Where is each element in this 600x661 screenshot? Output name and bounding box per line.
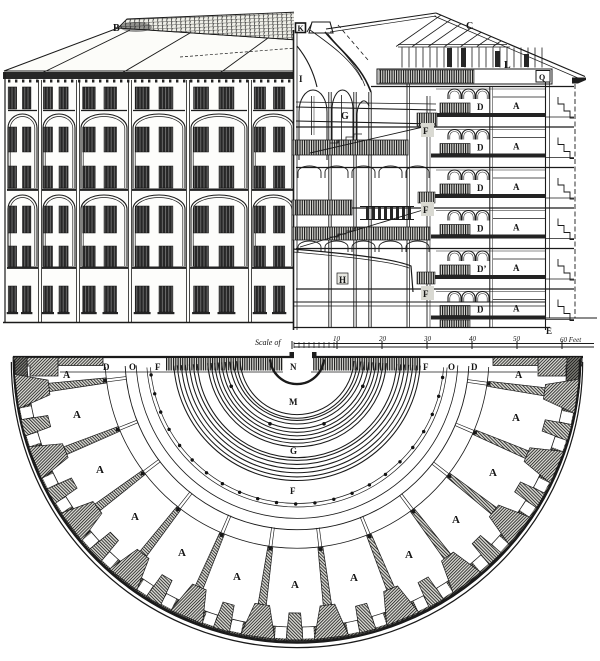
- svg-text:A: A: [515, 370, 523, 381]
- svg-text:A: A: [291, 579, 299, 591]
- svg-text:A: A: [489, 467, 497, 479]
- svg-text:A: A: [513, 223, 520, 233]
- svg-text:H: H: [339, 275, 346, 285]
- svg-text:20: 20: [379, 335, 387, 343]
- svg-text:C: C: [466, 21, 473, 32]
- svg-text:A: A: [512, 412, 520, 424]
- svg-text:D: D: [103, 362, 110, 372]
- svg-text:A: A: [131, 511, 139, 523]
- svg-text:O: O: [448, 362, 455, 372]
- svg-text:Q: Q: [539, 73, 545, 82]
- svg-text:F: F: [423, 205, 429, 215]
- svg-text:A: A: [513, 182, 520, 192]
- svg-text:N: N: [290, 362, 297, 372]
- svg-text:K: K: [298, 24, 305, 33]
- svg-text:30: 30: [423, 335, 432, 343]
- svg-text:A: A: [233, 571, 241, 583]
- svg-text:A: A: [96, 464, 104, 476]
- svg-text:I: I: [299, 74, 303, 84]
- svg-text:D: D: [477, 224, 484, 234]
- svg-text:A: A: [350, 572, 358, 584]
- svg-text:60 Feet: 60 Feet: [560, 336, 582, 344]
- svg-text:40: 40: [469, 335, 477, 343]
- svg-text:A: A: [513, 304, 520, 314]
- svg-text:50: 50: [513, 335, 521, 343]
- svg-text:D: D: [477, 143, 484, 153]
- svg-text:F: F: [423, 126, 429, 136]
- svg-text:A: A: [452, 514, 460, 526]
- svg-text:F: F: [423, 362, 429, 372]
- svg-text:O: O: [129, 362, 136, 372]
- svg-text:B: B: [113, 23, 120, 34]
- svg-text:G: G: [290, 446, 297, 456]
- svg-text:A: A: [178, 547, 186, 559]
- svg-text:A: A: [73, 409, 81, 421]
- svg-text:F: F: [155, 362, 161, 372]
- svg-text:A: A: [405, 549, 413, 561]
- svg-text:M: M: [289, 397, 298, 407]
- svg-text:D: D: [471, 362, 478, 372]
- svg-text:G: G: [341, 111, 349, 122]
- svg-text:F: F: [290, 486, 296, 496]
- svg-text:A: A: [513, 142, 520, 152]
- svg-text:10: 10: [333, 335, 341, 343]
- svg-text:D: D: [477, 102, 484, 112]
- svg-text:Scale of: Scale of: [255, 338, 282, 347]
- svg-text:D: D: [477, 183, 484, 193]
- svg-text:D’: D’: [477, 264, 487, 274]
- svg-text:F: F: [423, 289, 429, 299]
- svg-text:A: A: [513, 101, 520, 111]
- svg-text:A: A: [63, 370, 71, 381]
- svg-text:A: A: [513, 263, 520, 273]
- svg-text:L: L: [504, 60, 511, 71]
